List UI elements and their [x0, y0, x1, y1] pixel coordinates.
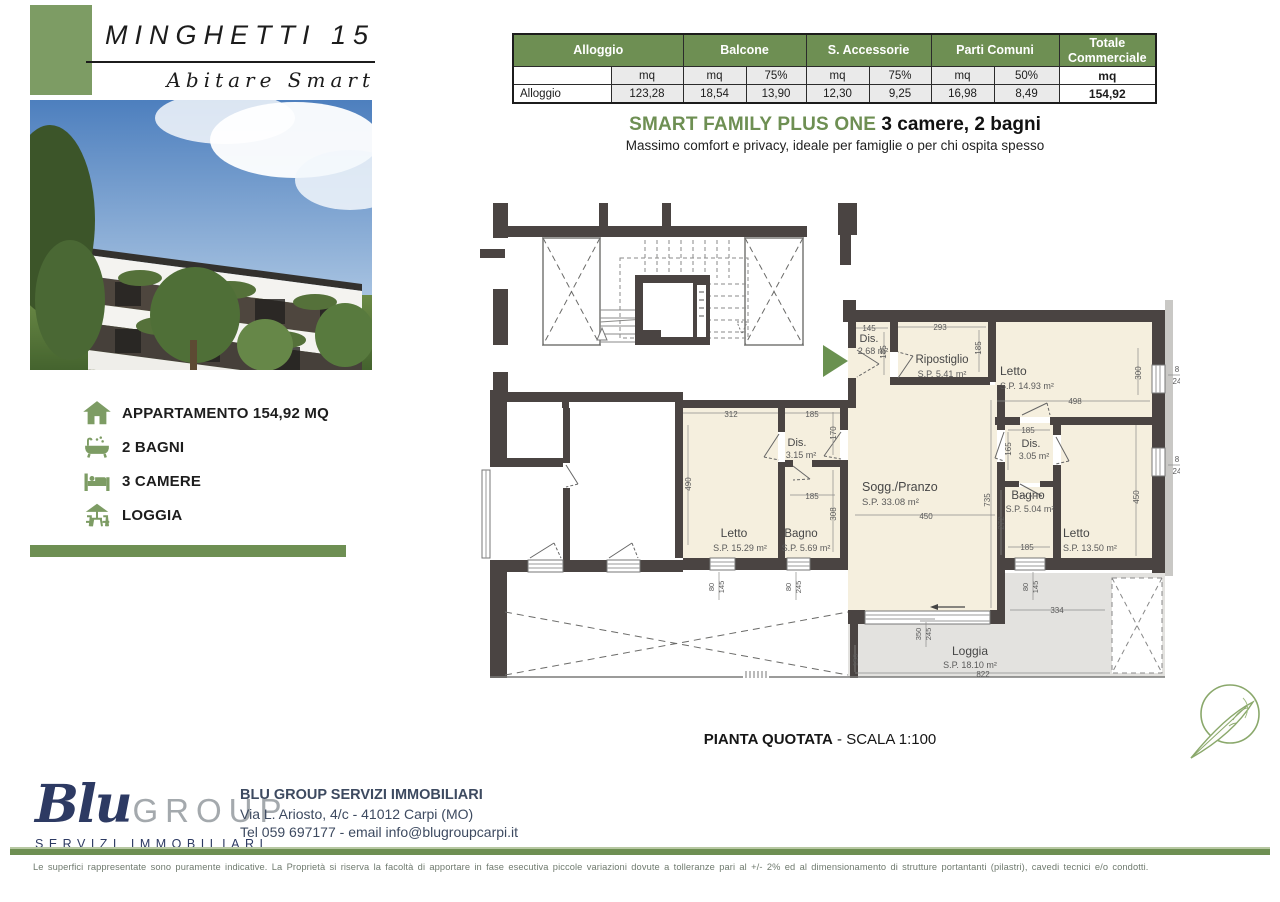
- value-cell: 8,49: [994, 85, 1059, 104]
- svg-text:498: 498: [1068, 397, 1082, 406]
- brochure-page: MINGHETTI 15 Abitare Smart: [0, 0, 1280, 902]
- page-subtitle: Abitare Smart: [92, 68, 375, 92]
- svg-text:Sogg./Pranzo: Sogg./Pranzo: [862, 480, 938, 494]
- unit-cell: mq: [611, 67, 683, 85]
- value-cell: 9,25: [869, 85, 931, 104]
- svg-text:145: 145: [862, 324, 876, 333]
- value-cell: 13,90: [746, 85, 806, 104]
- svg-text:165: 165: [1004, 442, 1013, 456]
- svg-text:S.P. 18.10 m²: S.P. 18.10 m²: [943, 660, 997, 670]
- unit-cell: 50%: [994, 67, 1059, 85]
- unit-cell: mq: [806, 67, 869, 85]
- caption-bold: PIANTA QUOTATA: [704, 731, 833, 748]
- svg-text:24: 24: [1173, 377, 1180, 386]
- svg-text:S.P. 5.04 m²: S.P. 5.04 m²: [1006, 504, 1055, 514]
- table-units-row: mq mq 75% mq 75% mq 50% mq: [513, 67, 1156, 85]
- svg-text:145: 145: [1031, 581, 1040, 594]
- table-header-row: Alloggio Balcone S. Accessorie Parti Com…: [513, 34, 1156, 67]
- svg-text:185: 185: [1020, 543, 1034, 552]
- brand-color-block: [30, 5, 92, 95]
- col-totale: Totale Commerciale: [1059, 34, 1156, 67]
- feature-list: APPARTAMENTO 154,92 MQ 2 BAGNI: [82, 396, 382, 532]
- svg-text:Bagno: Bagno: [784, 528, 817, 540]
- svg-text:145: 145: [717, 581, 726, 594]
- col-parti-comuni: Parti Comuni: [931, 34, 1059, 67]
- svg-text:S.P. 15.29 m²: S.P. 15.29 m²: [713, 543, 767, 553]
- value-cell: 16,98: [931, 85, 994, 104]
- disclaimer-text: Le superfici rappresentate sono purament…: [33, 862, 1247, 872]
- headline-subtitle: Massimo comfort e privacy, ideale per fa…: [520, 138, 1150, 154]
- svg-text:185: 185: [879, 345, 888, 359]
- svg-text:185: 185: [805, 492, 819, 501]
- svg-text:S.P. 5.41 m²: S.P. 5.41 m²: [918, 369, 967, 379]
- svg-text:3.05 m²: 3.05 m²: [1019, 451, 1050, 461]
- svg-text:490: 490: [684, 477, 693, 491]
- value-cell: Alloggio: [513, 85, 611, 104]
- svg-text:Dis.: Dis.: [788, 437, 807, 449]
- svg-text:170: 170: [829, 426, 838, 440]
- svg-text:Letto: Letto: [1063, 526, 1090, 540]
- svg-text:8: 8: [1175, 365, 1180, 374]
- feature-label: 2 BAGNI: [122, 439, 184, 456]
- value-cell: 12,30: [806, 85, 869, 104]
- caption-rest: - SCALA 1:100: [833, 731, 936, 748]
- page-title: MINGHETTI 15: [92, 20, 375, 51]
- svg-text:3.15 m²: 3.15 m²: [786, 450, 817, 460]
- svg-text:822: 822: [976, 670, 990, 679]
- svg-text:450: 450: [919, 512, 933, 521]
- svg-text:S.P. 14.93 m²: S.P. 14.93 m²: [1000, 381, 1054, 391]
- svg-text:450: 450: [1132, 490, 1141, 504]
- feature-label: LOGGIA: [122, 507, 182, 524]
- svg-text:185: 185: [1021, 426, 1035, 435]
- svg-text:308: 308: [829, 507, 838, 521]
- bed-icon: [82, 466, 122, 496]
- svg-text:S.P. 33.08 m²: S.P. 33.08 m²: [862, 497, 919, 508]
- table-data-row: Alloggio 123,28 18,54 13,90 12,30 9,25 1…: [513, 85, 1156, 104]
- footer-contact-block: BLU GROUP SERVIZI IMMOBILIARI Via L. Ari…: [240, 786, 660, 841]
- headline-suffix: 3 camere, 2 bagni: [876, 114, 1041, 135]
- svg-text:300: 300: [1134, 366, 1143, 380]
- svg-text:Dis.: Dis.: [860, 333, 879, 345]
- svg-text:350: 350: [914, 628, 923, 641]
- unit-cell: mq: [683, 67, 746, 85]
- col-accessorie: S. Accessorie: [806, 34, 931, 67]
- svg-text:Ripostiglio: Ripostiglio: [915, 354, 968, 366]
- building-photo: [30, 100, 372, 370]
- svg-text:312: 312: [724, 410, 738, 419]
- unit-cell: 75%: [746, 67, 806, 85]
- col-balcone: Balcone: [683, 34, 806, 67]
- entrance-arrow-icon: [823, 345, 848, 377]
- value-cell: 123,28: [611, 85, 683, 104]
- col-alloggio: Alloggio: [513, 34, 683, 67]
- unit-cell: mq: [1059, 67, 1156, 85]
- svg-text:735: 735: [983, 493, 992, 507]
- feature-label: APPARTAMENTO 154,92 MQ: [122, 405, 329, 422]
- svg-text:245: 245: [924, 628, 933, 641]
- svg-text:245: 245: [794, 581, 803, 594]
- svg-text:8: 8: [1175, 455, 1180, 464]
- svg-text:Dis.: Dis.: [1022, 438, 1041, 450]
- unit-cell: [513, 67, 611, 85]
- company-name: BLU GROUP SERVIZI IMMOBILIARI: [240, 786, 660, 805]
- feature-loggia: LOGGIA: [82, 498, 382, 532]
- svg-text:150: 150: [851, 654, 860, 667]
- unit-cell: mq: [931, 67, 994, 85]
- svg-text:80: 80: [707, 583, 716, 591]
- value-cell: 18,54: [683, 85, 746, 104]
- svg-text:Letto: Letto: [1000, 364, 1027, 378]
- footer-divider: [10, 847, 1270, 855]
- svg-text:293: 293: [933, 323, 947, 332]
- house-icon: [82, 398, 122, 428]
- sidebar-divider-bar: [30, 545, 346, 557]
- floor-plan: Dis.2.68 m²145185RipostiglioS.P. 5.41 m²…: [480, 193, 1180, 693]
- feature-apartment: APPARTAMENTO 154,92 MQ: [82, 396, 382, 430]
- svg-text:Loggia: Loggia: [952, 644, 988, 658]
- elevator: [635, 275, 710, 345]
- surfaces-table: Alloggio Balcone S. Accessorie Parti Com…: [512, 33, 1157, 104]
- svg-text:Letto: Letto: [721, 526, 748, 540]
- bathtub-icon: [82, 432, 122, 462]
- svg-text:334: 334: [1050, 606, 1064, 615]
- svg-text:80: 80: [1021, 583, 1030, 591]
- plan-caption: PIANTA QUOTATA - SCALA 1:100: [610, 731, 1030, 748]
- leaf-watermark-icon: [1185, 676, 1267, 768]
- svg-text:80: 80: [784, 583, 793, 591]
- title-underline: [86, 61, 375, 63]
- company-address: Via L. Ariosto, 4/c - 41012 Carpi (MO): [240, 805, 660, 823]
- feature-bedrooms: 3 CAMERE: [82, 464, 382, 498]
- svg-text:Bagno: Bagno: [1011, 490, 1044, 502]
- headline-title: SMART FAMILY PLUS ONE: [629, 114, 876, 135]
- svg-text:S.P. 13.50 m²: S.P. 13.50 m²: [1063, 543, 1117, 553]
- unit-cell: 75%: [869, 67, 931, 85]
- company-contact: Tel 059 697177 - email info@blugroupcarp…: [240, 823, 660, 841]
- svg-text:272: 272: [997, 516, 1006, 530]
- blugroup-logo: BluGROUP SERVIZI IMMOBILIARI: [35, 774, 235, 851]
- svg-text:185: 185: [805, 410, 819, 419]
- patio-icon: [82, 500, 122, 530]
- feature-bathrooms: 2 BAGNI: [82, 430, 382, 464]
- value-cell: 154,92: [1059, 85, 1156, 104]
- logo-blu-text: Blu: [35, 774, 131, 835]
- feature-label: 3 CAMERE: [122, 473, 201, 490]
- svg-text:185: 185: [974, 341, 983, 355]
- svg-text:S.P. 5.69 m²: S.P. 5.69 m²: [782, 543, 831, 553]
- svg-text:24: 24: [1173, 467, 1180, 476]
- apartment-headline: SMART FAMILY PLUS ONE 3 camere, 2 bagni …: [520, 114, 1150, 153]
